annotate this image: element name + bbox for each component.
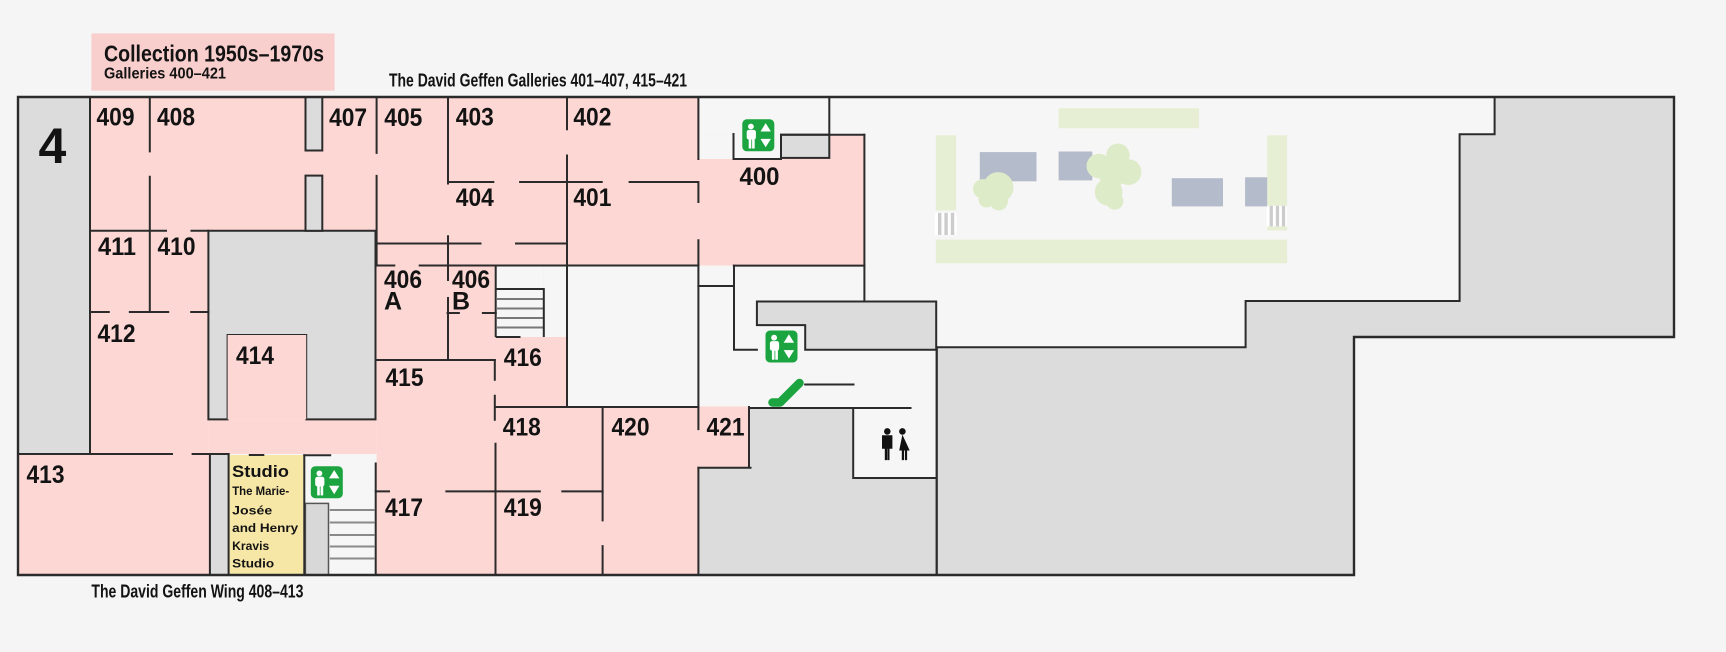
svg-text:414: 414: [236, 342, 274, 370]
svg-text:411: 411: [98, 233, 136, 261]
svg-text:413: 413: [27, 461, 65, 489]
svg-text:The David Geffen Galleries 401: The David Geffen Galleries 401–407, 415–…: [389, 71, 687, 91]
svg-text:404: 404: [456, 184, 494, 212]
svg-text:The Marie-: The Marie-: [232, 484, 289, 498]
svg-text:Galleries 400–421: Galleries 400–421: [104, 66, 226, 83]
svg-text:Studio: Studio: [232, 557, 274, 571]
svg-text:4: 4: [39, 118, 67, 174]
svg-text:412: 412: [98, 320, 136, 348]
svg-text:407: 407: [329, 104, 367, 132]
svg-text:420: 420: [612, 414, 650, 442]
svg-text:403: 403: [456, 104, 494, 132]
svg-text:Studio: Studio: [232, 462, 289, 481]
svg-text:Kravis: Kravis: [232, 539, 269, 553]
svg-text:410: 410: [158, 233, 196, 261]
svg-text:409: 409: [97, 104, 135, 132]
svg-text:B: B: [452, 288, 470, 316]
svg-text:421: 421: [707, 414, 745, 442]
svg-text:416: 416: [504, 344, 542, 372]
svg-text:418: 418: [503, 414, 541, 442]
svg-text:408: 408: [157, 104, 195, 132]
svg-text:402: 402: [573, 104, 611, 132]
svg-text:417: 417: [385, 494, 423, 522]
svg-text:and Henry: and Henry: [232, 521, 298, 535]
svg-text:Josée: Josée: [232, 504, 272, 518]
svg-text:The David Geffen Wing 408–413: The David Geffen Wing 408–413: [91, 582, 303, 602]
svg-text:415: 415: [386, 364, 424, 392]
svg-text:401: 401: [573, 184, 611, 212]
svg-text:405: 405: [384, 104, 422, 132]
svg-text:Collection 1950s–1970s: Collection 1950s–1970s: [104, 41, 324, 67]
svg-text:A: A: [384, 288, 402, 316]
svg-text:419: 419: [504, 494, 542, 522]
svg-text:400: 400: [740, 163, 780, 191]
